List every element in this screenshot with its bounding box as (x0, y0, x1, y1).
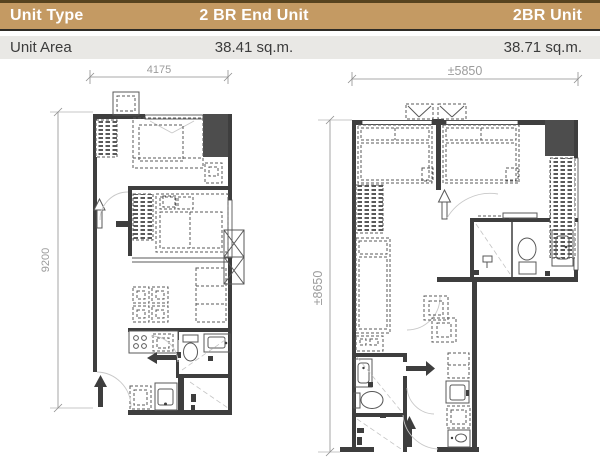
left-plan-walls (93, 114, 232, 415)
sliding-door (503, 213, 537, 218)
unit-area-label: Unit Area (0, 39, 168, 56)
table-header-row: Unit Type 2 BR End Unit 2BR Unit (0, 0, 600, 31)
right-plan-bathroom-bottom (354, 357, 401, 449)
bed (156, 194, 228, 252)
left-plan-living (133, 268, 226, 322)
nightstand (356, 336, 383, 351)
toilet (518, 238, 536, 260)
direction-arrow-left (147, 352, 177, 364)
stove (447, 406, 470, 428)
left-plan-dimension-left: 9200 (40, 108, 93, 412)
floorplan-2br-end-unit: 4175 9200 (40, 64, 244, 415)
shower-control (483, 256, 492, 262)
right-plan-shaft (545, 120, 578, 156)
wardrobe (133, 194, 153, 240)
bed (443, 125, 519, 183)
left-plan-width-label: 4175 (147, 64, 171, 76)
left-unit-area: 38.41 sq.m. (168, 39, 340, 56)
left-plan-shaft (203, 114, 232, 157)
wardrobe (356, 185, 383, 233)
left-plan-balcony-ac-box (113, 92, 194, 133)
unit-spec-table: Unit Type 2 BR End Unit 2BR Unit Unit Ar… (0, 0, 600, 59)
table (130, 386, 151, 409)
floorplan-2br-unit: ±5850 ±8650 (311, 64, 582, 456)
left-plan-height-label: 9200 (40, 248, 52, 272)
toilet (184, 343, 198, 361)
bed (358, 125, 432, 183)
lamp (422, 168, 433, 181)
right-plan-balcony-ac-boxes (406, 104, 466, 119)
console (196, 268, 226, 322)
entry-arrow-up (94, 375, 107, 407)
right-plan-kitchen (446, 353, 470, 447)
left-unit-name: 2 BR End Unit (168, 7, 340, 25)
left-plan-dimension-top: 4175 (86, 64, 232, 84)
right-plan-corridor (439, 190, 538, 219)
wardrobe (96, 120, 117, 157)
unit-type-header: Unit Type (0, 7, 168, 25)
toilet (361, 392, 383, 409)
right-plan-bedroom1 (356, 125, 433, 233)
wardrobe (550, 158, 575, 258)
bed (356, 238, 390, 333)
bed (133, 118, 203, 168)
right-plan-dining (424, 296, 456, 342)
right-plan-width-label: ±5850 (448, 64, 483, 78)
toilet-tank (183, 335, 198, 342)
nightstand (205, 163, 222, 183)
dining-set (133, 287, 168, 322)
right-plan-dimension-top: ±5850 (348, 64, 582, 86)
floorplans-canvas: 4175 9200 (0, 59, 600, 462)
right-plan-bedroom3-zone (356, 238, 440, 351)
floorplan-brochure-page: { "table": { "unit_type_label": "Unit Ty… (0, 0, 600, 462)
left-plan-bedroom2 (133, 194, 228, 252)
corridor-arrow-right (406, 361, 435, 376)
right-unit-name: 2BR Unit (340, 7, 600, 25)
right-plan-dimension-left: ±8650 (311, 116, 352, 456)
right-unit-area: 38.71 sq.m. (340, 39, 600, 56)
left-plan-ac-ledge (224, 230, 244, 284)
lamp (163, 196, 176, 207)
right-plan-height-label: ±8650 (311, 271, 325, 306)
unit-area-row: Unit Area 38.41 sq.m. 38.71 sq.m. (0, 36, 600, 59)
